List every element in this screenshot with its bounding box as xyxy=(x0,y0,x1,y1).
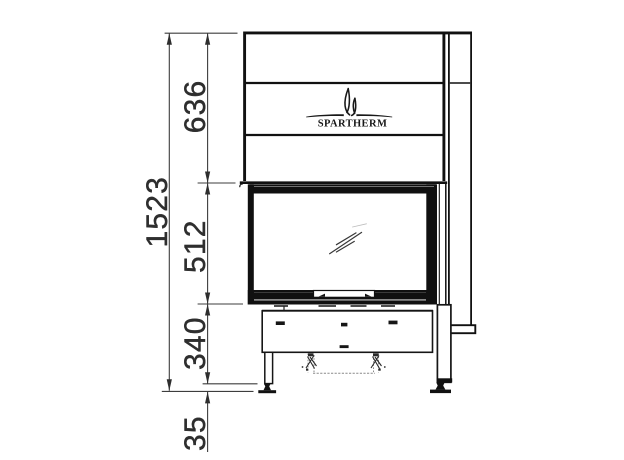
svg-text:1523: 1523 xyxy=(141,176,174,248)
svg-text:636: 636 xyxy=(179,80,212,134)
svg-text:512: 512 xyxy=(179,219,212,273)
svg-text:SPARTHERM: SPARTHERM xyxy=(318,119,388,130)
svg-text:35: 35 xyxy=(179,415,212,451)
svg-text:340: 340 xyxy=(179,316,212,370)
